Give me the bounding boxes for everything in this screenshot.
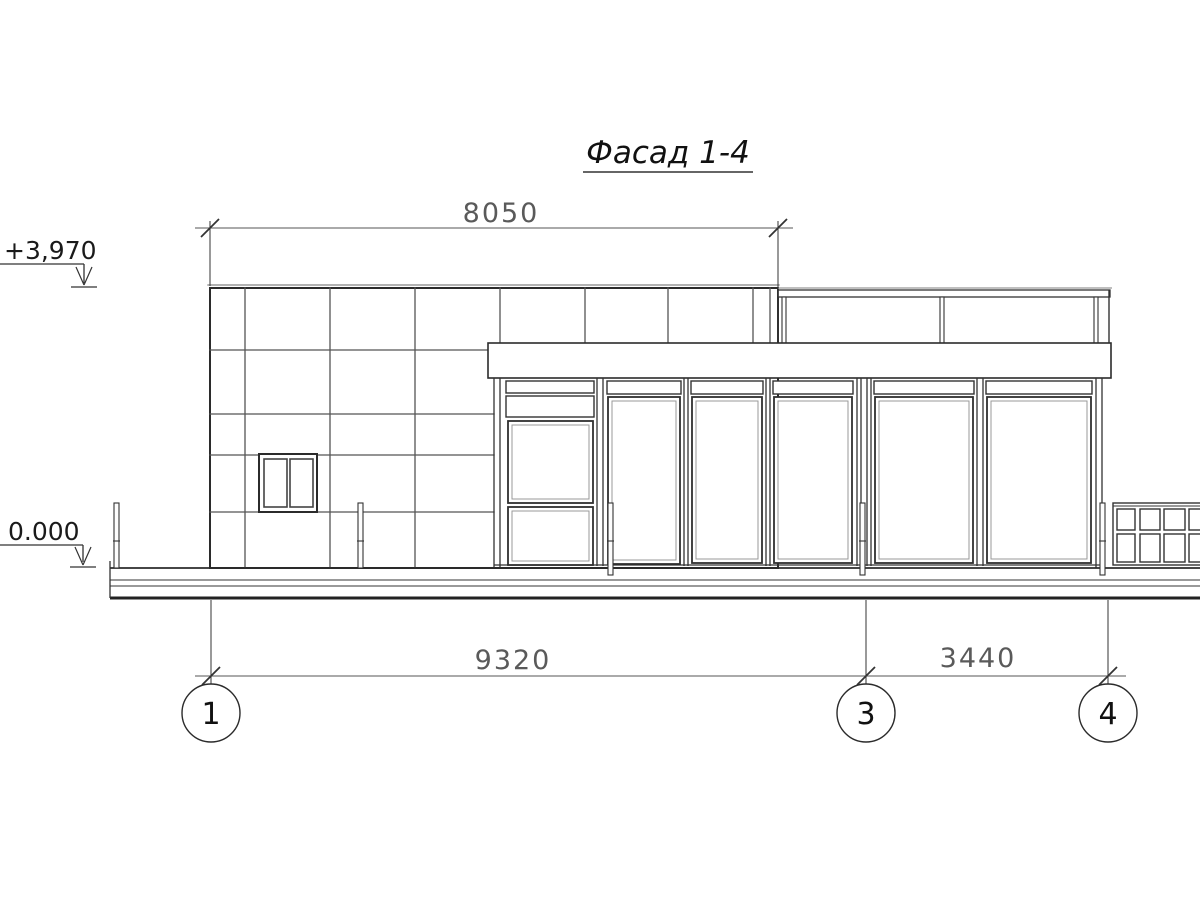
axis-bubble-4: 4 [1079, 684, 1137, 742]
storefront [494, 378, 1102, 568]
railing-post-middle [940, 297, 944, 345]
post-5 [1099, 503, 1106, 575]
glass-bay4 [774, 397, 852, 563]
roof-railing [778, 288, 1112, 345]
axis-bubble-1: 1 [182, 684, 240, 742]
level-ground-value: 0.000 [8, 517, 80, 546]
window-pane-left [264, 459, 287, 507]
title-text: Фасад 1-4 [586, 135, 750, 171]
door-glass-upper [508, 421, 593, 503]
post-3 [607, 503, 614, 575]
dim-top-value: 8050 [463, 198, 540, 229]
glass-bay2 [608, 397, 680, 564]
glass-bay6 [987, 397, 1091, 563]
railing-post-right [1094, 297, 1098, 345]
axis-bubble-1-label: 1 [201, 697, 220, 732]
transom-bay2 [607, 381, 681, 394]
railing-top-rail [778, 290, 1110, 297]
dimension-top: 8050 [195, 198, 793, 288]
axis-bubble-4-label: 4 [1098, 697, 1117, 732]
transom-bay6 [986, 381, 1092, 394]
axis-bubble-3: 3 [837, 684, 895, 742]
level-top-value: +3,970 [4, 236, 97, 265]
level-mark-top: +3,970 [0, 236, 97, 287]
elevation-sheet: Фасад 1-4 [0, 0, 1200, 900]
transom-bay4 [773, 381, 853, 394]
wall-window [259, 454, 317, 512]
dimension-bottom: 9320 3440 [195, 600, 1126, 685]
post-4 [859, 503, 866, 575]
window-pane-right [290, 459, 313, 507]
transom-bay1-upper [506, 381, 594, 393]
transom-bay3 [691, 381, 763, 394]
dim-bottom-left-value: 9320 [475, 645, 552, 676]
level-mark-ground: 0.000 [0, 517, 96, 567]
dim-bottom-right-value: 3440 [940, 643, 1017, 674]
door-glass-lower [508, 507, 593, 565]
transom-bay1-lower [506, 396, 594, 417]
facade-drawing: Фасад 1-4 [0, 0, 1200, 900]
axis-bubble-3-label: 3 [856, 697, 875, 732]
fascia-band [488, 343, 1111, 378]
fence-grille [1113, 503, 1200, 565]
axis-bubbles: 1 3 4 [182, 684, 1137, 742]
post-1 [113, 503, 120, 568]
post-2 [357, 503, 364, 568]
drawing-title: Фасад 1-4 [583, 135, 753, 172]
glass-bay3 [692, 397, 762, 563]
railing-post-left [782, 297, 786, 345]
transom-bay5 [874, 381, 974, 394]
glass-bay5 [875, 397, 973, 563]
